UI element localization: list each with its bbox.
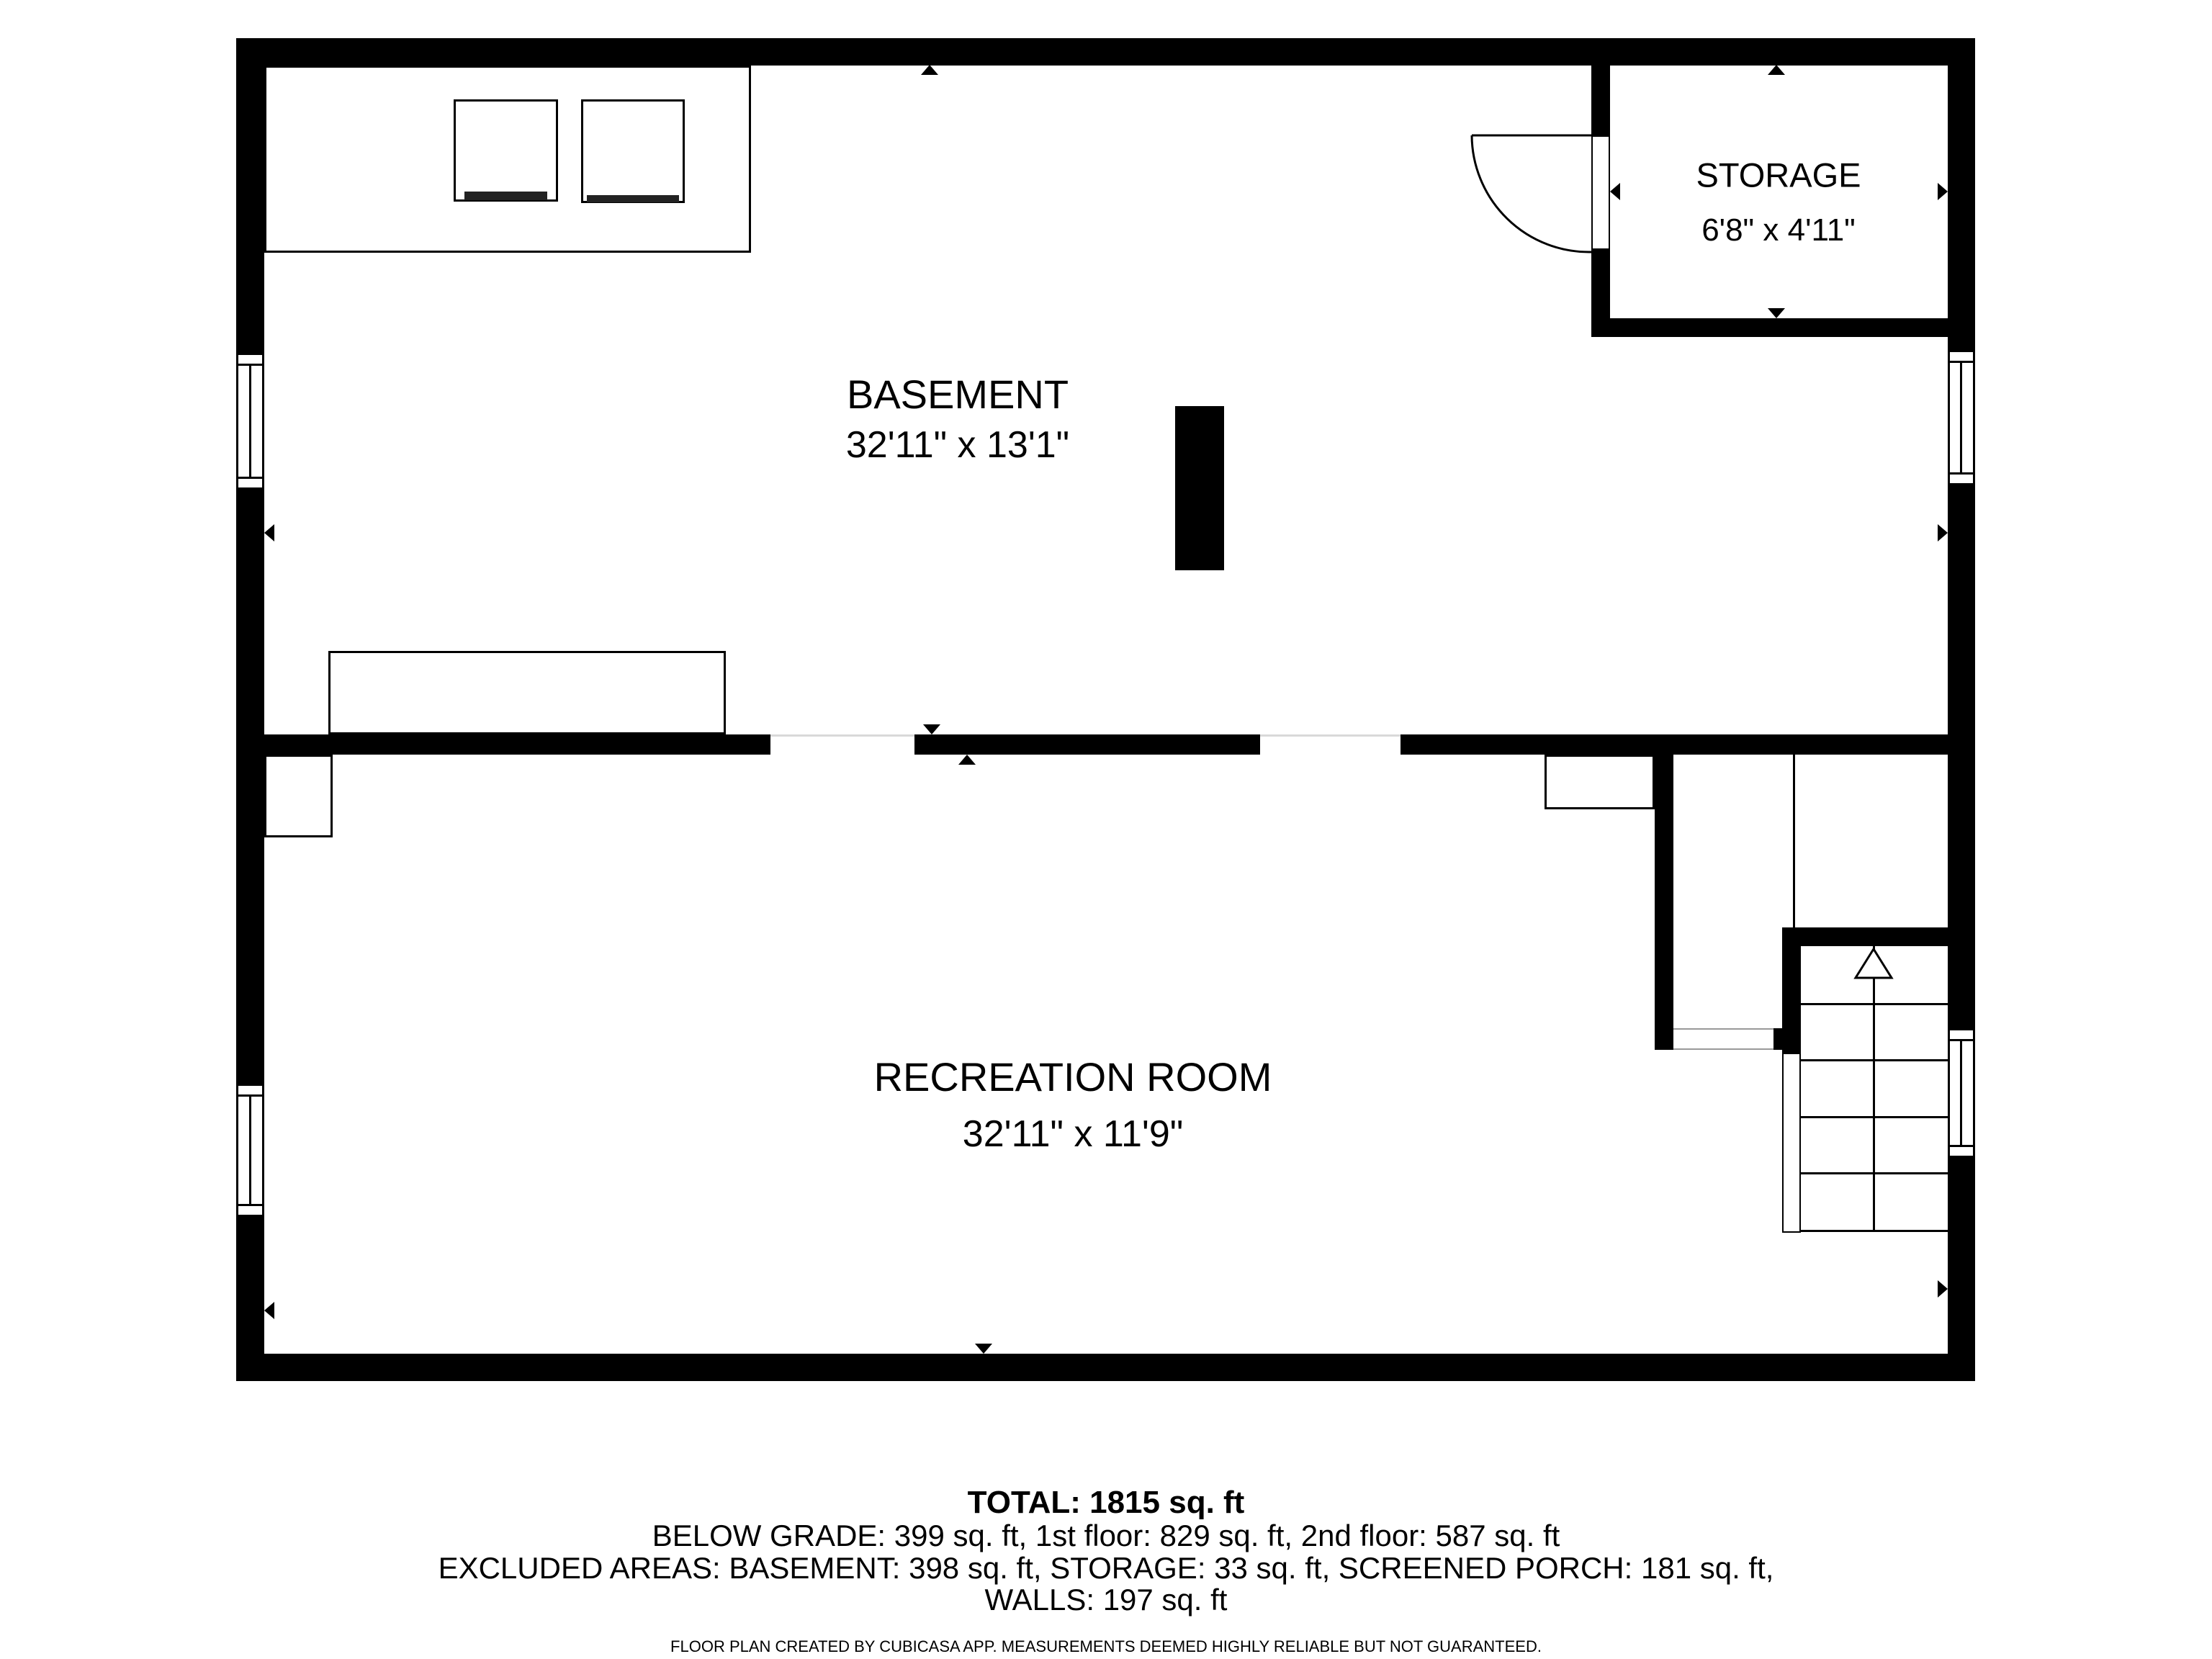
window-frame-line: [238, 477, 262, 479]
window-glass-line: [249, 1097, 251, 1204]
hall-doorway-line-top: [1673, 1028, 1773, 1030]
storage-door-swing-arc: [1472, 135, 1591, 252]
basement-room-label: BASEMENT: [847, 374, 1069, 415]
footer-disclaimer: FLOOR PLAN CREATED BY CUBICASA APP. MEAS…: [670, 1638, 1542, 1655]
measure-arrow-right-icon: [1938, 1280, 1948, 1298]
opening-floor-line-1: [770, 734, 914, 737]
hall-doorway-line-bottom: [1673, 1048, 1773, 1050]
window-right-stairs: [1948, 1028, 1975, 1158]
interior-wall-segment-c: [1401, 734, 1948, 755]
hall-thin-boundary: [1793, 755, 1795, 927]
appliance-dryer: [581, 99, 685, 203]
window-left-recreation: [236, 1084, 264, 1217]
storage-wall-left-upper: [1591, 65, 1610, 135]
interior-wall-segment-a: [264, 734, 770, 755]
hall-wall-vertical: [1655, 755, 1673, 1050]
window-left-basement: [236, 353, 264, 490]
footer-walls-area: WALLS: 197 sq. ft: [985, 1583, 1228, 1617]
wall-bottom: [236, 1354, 1975, 1381]
wall-top: [236, 38, 1975, 66]
floor-plan-canvas: BASEMENT 32'11" x 13'1" STORAGE 6'8" x 4…: [0, 0, 2212, 1659]
appliance-washer: [454, 99, 558, 202]
footer-excluded-areas: EXCLUDED AREAS: BASEMENT: 398 sq. ft, ST…: [439, 1552, 1774, 1585]
interior-wall-segment-b: [914, 734, 1260, 755]
measure-arrow-down-icon: [975, 1344, 992, 1354]
stair-wall-left: [1782, 927, 1801, 1053]
window-frame-line: [1950, 1145, 1973, 1147]
recreation-room-label: RECREATION ROOM: [874, 1057, 1272, 1097]
window-frame-line: [1950, 472, 1973, 475]
window-glass-line: [1960, 363, 1962, 472]
stair-center-line: [1873, 945, 1875, 1232]
storage-room-dimensions: 6'8" x 4'11": [1701, 215, 1856, 246]
measure-arrow-up-icon: [1768, 65, 1785, 75]
storage-door-opening: [1591, 135, 1610, 250]
window-frame-line: [238, 1204, 262, 1206]
recreation-shelf: [264, 755, 333, 837]
measure-arrow-right-icon: [1938, 183, 1948, 200]
basement-table: [328, 651, 726, 734]
measure-arrow-down-icon: [923, 724, 940, 734]
support-pillar: [1175, 406, 1224, 570]
stair-railing: [1782, 1053, 1801, 1233]
storage-room-label: STORAGE: [1696, 158, 1861, 192]
measure-arrow-up-icon: [958, 755, 976, 765]
window-right-basement: [1948, 350, 1975, 485]
footer-floor-areas: BELOW GRADE: 399 sq. ft, 1st floor: 829 …: [652, 1519, 1560, 1552]
opening-floor-line-2: [1260, 734, 1401, 737]
stair-wall-top: [1782, 927, 1975, 946]
recreation-room-dimensions: 32'11" x 11'9": [963, 1115, 1183, 1153]
basement-room-dimensions: 32'11" x 13'1": [846, 426, 1069, 464]
measure-arrow-up-icon: [921, 65, 938, 75]
wall-right: [1948, 38, 1975, 1381]
measure-arrow-down-icon: [1768, 308, 1785, 318]
hall-closet: [1545, 755, 1655, 809]
appliance-dryer-front-bar: [587, 195, 679, 202]
window-glass-line: [249, 366, 251, 477]
measure-arrow-right-icon: [1938, 524, 1948, 541]
footer-total-area: TOTAL: 1815 sq. ft: [968, 1485, 1245, 1520]
measure-arrow-left-icon: [264, 524, 274, 541]
storage-wall-bottom: [1591, 318, 1975, 337]
window-glass-line: [1960, 1041, 1962, 1145]
appliance-washer-front-bar: [464, 192, 547, 200]
measure-arrow-left-icon: [1610, 183, 1620, 200]
measure-arrow-left-icon: [264, 1302, 274, 1319]
